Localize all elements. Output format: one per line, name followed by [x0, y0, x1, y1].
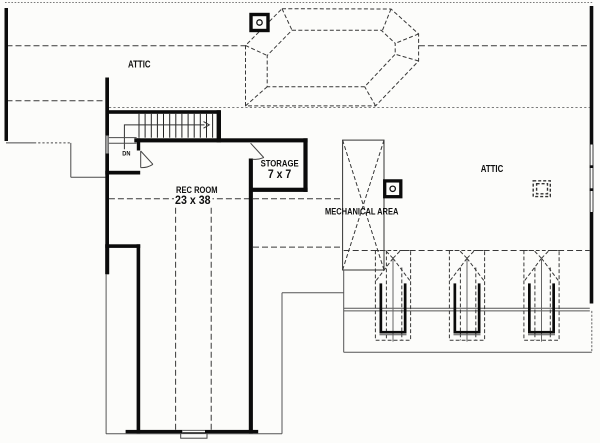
svg-text:STORAGE: STORAGE	[261, 158, 299, 168]
svg-text:ATTIC: ATTIC	[128, 60, 151, 71]
svg-text:23 x 38: 23 x 38	[175, 194, 211, 207]
svg-text:ATTIC: ATTIC	[481, 164, 504, 175]
svg-text:7 x 7: 7 x 7	[268, 168, 291, 181]
svg-text:DN: DN	[122, 150, 131, 157]
svg-text:MECHANICAL AREA: MECHANICAL AREA	[325, 207, 399, 217]
